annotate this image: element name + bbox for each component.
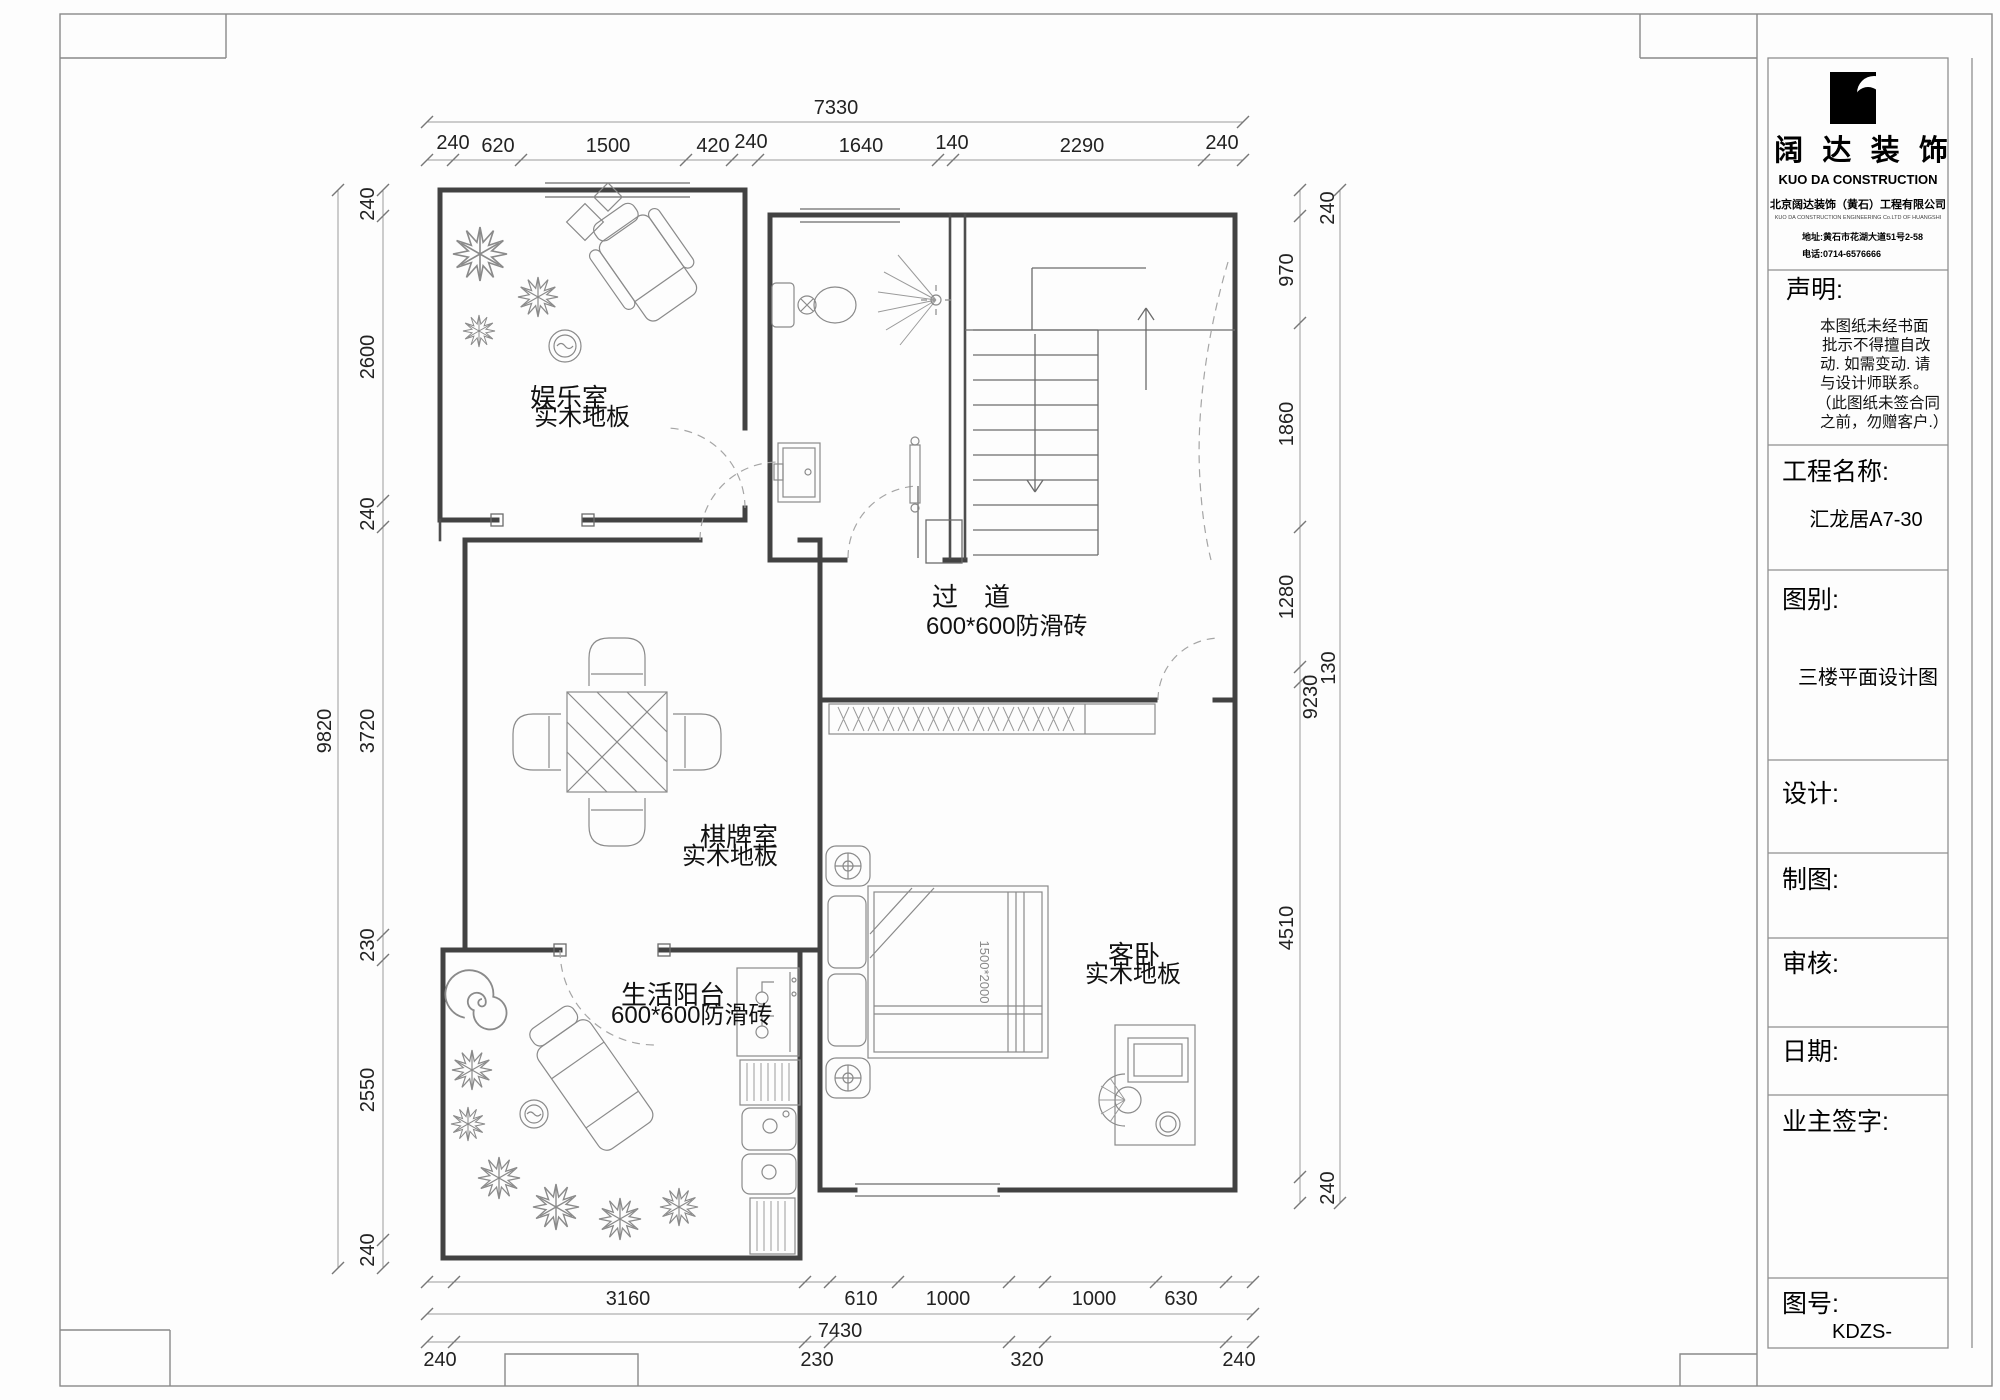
room-floor-entertainment: 实木地板	[534, 404, 630, 431]
bed	[868, 886, 1048, 1058]
sheet-type-value: 三楼平面设计图	[1798, 666, 1938, 689]
statement-line: （此图纸未签合同	[1816, 394, 1940, 412]
dim-label: 320	[1010, 1349, 1043, 1371]
balcony-round-table	[520, 1100, 548, 1128]
room-floor-balcony: 600*600防滑砖	[611, 1002, 772, 1029]
mahjong-table	[567, 692, 667, 792]
dim-label: 4510	[1276, 906, 1298, 951]
dim-label: 1640	[839, 135, 884, 157]
date-label: 日期:	[1782, 1038, 1839, 1066]
statement-line: 之前，勿赠客户.）	[1820, 413, 1948, 431]
desk-and-chair	[1099, 1025, 1195, 1145]
dim-label: 240	[1317, 191, 1339, 224]
dim-label: 2290	[1060, 135, 1105, 157]
dim-label: 620	[481, 135, 514, 157]
company-name: 北京阔达装饰（黄石）工程有限公司	[1770, 197, 1946, 211]
brand-name-en: KUO DA CONSTRUCTION	[1778, 172, 1937, 187]
statement-line: 与设计师联系。	[1820, 374, 1929, 392]
dim-bottom-total: 7430	[818, 1320, 863, 1342]
project-name-label: 工程名称:	[1782, 458, 1889, 486]
room-floor-bedroom: 实木地板	[1085, 961, 1181, 988]
company-logo	[1830, 72, 1891, 124]
stair-down-arrow	[1027, 334, 1043, 492]
company-name-en: KUO DA CONSTRUCTION ENGINEERING Co.LTD O…	[1775, 215, 1942, 221]
designer-label: 设计:	[1782, 780, 1839, 808]
statement-line: 动. 如需变动. 请	[1820, 355, 1930, 373]
dim-label: 2550	[357, 1068, 379, 1113]
dim-left-total: 9820	[314, 709, 336, 754]
nightstands	[826, 846, 870, 1098]
dim-label: 240	[1205, 132, 1238, 154]
hall-cabinet	[774, 443, 820, 502]
bed-size-label: 1500*2000	[977, 941, 992, 1004]
dim-label: 1000	[926, 1288, 971, 1310]
ceiling-light	[878, 255, 951, 345]
dim-label: 240	[734, 131, 767, 153]
toilet	[772, 283, 856, 327]
dim-label: 230	[800, 1349, 833, 1371]
dim-label: 630	[1164, 1288, 1197, 1310]
statement-label: 声明:	[1786, 276, 1843, 304]
dim-label: 970	[1276, 253, 1298, 286]
stair-up-arrow	[1138, 308, 1154, 390]
drafter-label: 制图:	[1782, 866, 1839, 894]
round-table	[549, 330, 581, 362]
dim-label: 240	[1317, 1171, 1339, 1204]
dim-label: 240	[423, 1349, 456, 1371]
owner-signature-label: 业主签字:	[1782, 1108, 1889, 1136]
dim-label: 1860	[1276, 402, 1298, 447]
dim-label: 240	[357, 497, 379, 530]
dim-right-total: 9230	[1300, 675, 1322, 720]
title-block: 阔 达 装 饰 KUO DA CONSTRUCTION 北京阔达装饰（黄石）工程…	[1768, 58, 1954, 1348]
dim-label: 240	[357, 1233, 379, 1266]
sheet-number-label: 图号:	[1782, 1290, 1839, 1318]
brand-name-cn: 阔 达 装 饰	[1774, 134, 1954, 167]
project-name-value: 汇龙居A7-30	[1809, 508, 1922, 531]
dim-label: 140	[935, 132, 968, 154]
dim-label: 610	[844, 1288, 877, 1310]
dimension-lines	[332, 116, 1346, 1348]
sheet-type-label: 图别:	[1782, 586, 1839, 614]
reviewer-label: 审核:	[1782, 950, 1839, 978]
staircase	[965, 262, 1235, 560]
wardrobe	[829, 704, 1155, 734]
dim-label: 1500	[586, 135, 631, 157]
dim-top-total: 7330	[814, 97, 859, 119]
room-floor-corridor: 600*600防滑砖	[926, 613, 1087, 640]
room-floor-chess: 实木地板	[682, 843, 778, 870]
dim-label: 420	[696, 135, 729, 157]
dim-label: 240	[357, 187, 379, 220]
dim-label: 2600	[357, 335, 379, 380]
dim-label: 240	[1222, 1349, 1255, 1371]
statement-line: 批示不得擅自改	[1822, 335, 1931, 354]
floor-plan-svg: 7330 240 620 1500 420 240 1640 140 2290 …	[0, 0, 2000, 1400]
drawing-sheet: 7330 240 620 1500 420 240 1640 140 2290 …	[0, 0, 2000, 1400]
dim-label: 3720	[357, 709, 379, 754]
dim-label: 230	[357, 928, 379, 961]
dim-label: 3160	[606, 1288, 651, 1310]
company-phone: 电话:0714-6576666	[1802, 248, 1881, 259]
statement-line: 本图纸未经书面	[1820, 317, 1929, 335]
dim-label: 1280	[1276, 575, 1298, 620]
dim-label: 1000	[1072, 1288, 1117, 1310]
sheet-number-value: KDZS-	[1832, 1321, 1892, 1343]
room-label-corridor: 过 道	[932, 582, 1010, 612]
company-address: 地址:黄石市花湖大道51号2-58	[1802, 231, 1923, 242]
lounge-armchair	[576, 190, 710, 332]
dim-label: 240	[436, 132, 469, 154]
plants-entertainment	[453, 227, 558, 347]
